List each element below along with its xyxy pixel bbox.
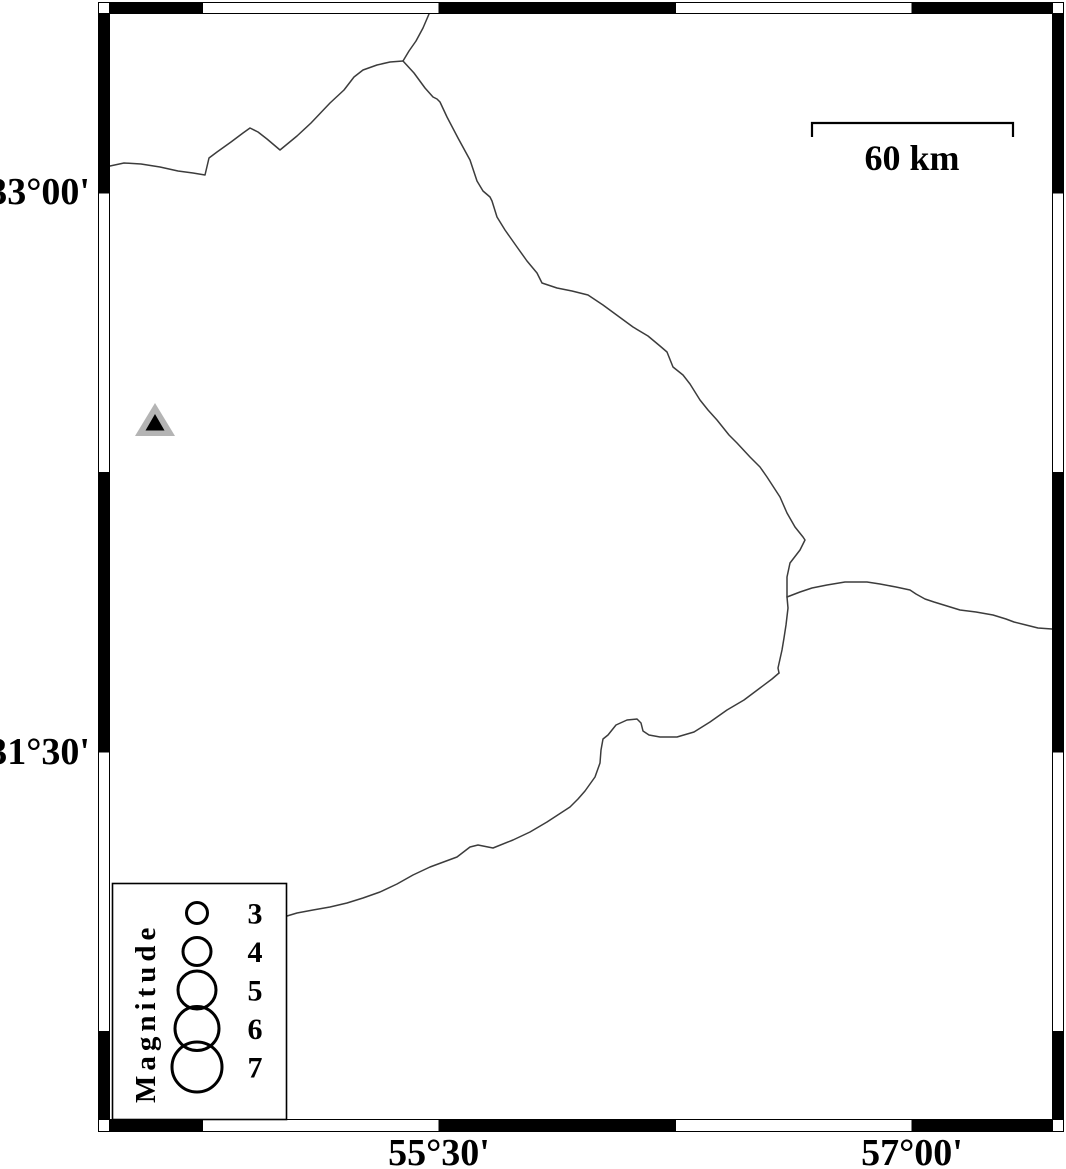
frame-corner-square — [1053, 3, 1064, 14]
longitude-label: 55°30' — [388, 1132, 490, 1169]
frame-segment-right — [1053, 1032, 1064, 1120]
frame-corner-square — [1053, 1120, 1064, 1132]
scale-bar-label: 60 km — [864, 138, 959, 178]
legend-magnitude-label: 7 — [248, 1052, 263, 1085]
latitude-label: 33°00' — [0, 171, 90, 213]
legend-magnitude-label: 5 — [248, 975, 263, 1008]
frame-segment-right — [1053, 473, 1064, 753]
frame-corner-square — [99, 1120, 110, 1132]
seismicity-map-figure: 60 kmMagnitude3456733°00'31°30'55°30'57°… — [0, 0, 1066, 1169]
frame-segment-right — [1053, 14, 1064, 194]
legend-magnitude-label: 3 — [248, 898, 263, 931]
longitude-label: 57°00' — [861, 1132, 963, 1169]
frame-segment-left — [99, 1032, 110, 1120]
frame-segment-bottom — [912, 1120, 1053, 1132]
legend-title: Magnitude — [130, 923, 162, 1103]
frame-segment-top — [110, 3, 203, 14]
frame-segment-left — [99, 473, 110, 753]
magnitude-legend: Magnitude34567 — [113, 884, 287, 1120]
legend-magnitude-label: 6 — [248, 1013, 263, 1046]
frame-segment-top — [439, 3, 676, 14]
map-canvas: 60 kmMagnitude3456733°00'31°30'55°30'57°… — [0, 0, 1066, 1169]
frame-corner-square — [99, 3, 110, 14]
frame-segment-top — [912, 3, 1053, 14]
frame-segment-left — [99, 14, 110, 194]
legend-magnitude-label: 4 — [248, 936, 263, 969]
frame-segment-bottom — [110, 1120, 203, 1132]
latitude-label: 31°30' — [0, 731, 90, 773]
frame-segment-bottom — [439, 1120, 676, 1132]
